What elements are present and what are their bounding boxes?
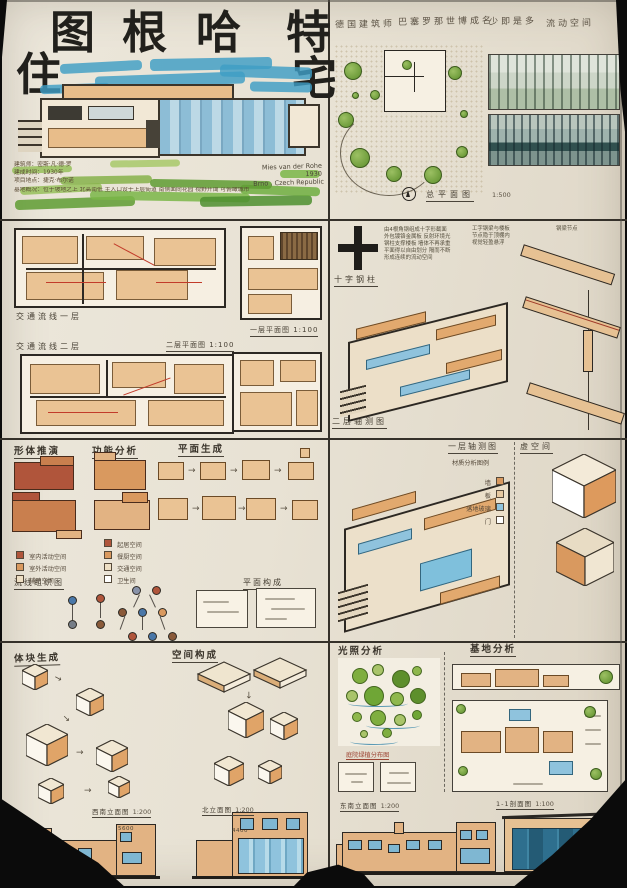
open-tray-diagram <box>252 654 308 690</box>
compose-sketch-line <box>203 601 229 603</box>
legend-a-label-3: 辅助空间 <box>29 578 54 585</box>
massing-study-block <box>94 500 150 530</box>
plan1-room <box>22 236 78 264</box>
structure-note-b2: 节点隐于顶棚内 <box>472 233 510 240</box>
structure-note-a3: 钢柱支撑楼板 墙体不再承重 <box>384 241 450 248</box>
massing-study-block <box>122 492 148 503</box>
plan2-room <box>112 362 166 388</box>
siteplan-cell-tan <box>461 731 501 753</box>
lily-pad <box>352 712 362 722</box>
plangen-arrow: → <box>192 504 200 514</box>
space-compose-cube <box>228 702 264 738</box>
siteplan-cell-tan <box>543 731 573 753</box>
house-stair <box>18 120 42 152</box>
north-arrow-triangle <box>406 190 410 197</box>
plan1-wall <box>26 268 216 270</box>
grass-marker-stroke <box>200 195 312 207</box>
siteplan-tiny-note <box>513 783 543 785</box>
interior-sketch-1 <box>488 54 620 110</box>
massing-arrow: → <box>76 748 84 758</box>
massing-study-block <box>40 456 74 466</box>
site-tree <box>402 60 412 70</box>
section-scale: 1:100 <box>535 800 554 808</box>
plangen-small-square <box>300 448 310 458</box>
pond-label: 庭院绿植分布图 <box>346 750 389 760</box>
elev-c-window <box>476 830 488 840</box>
plan-small-room <box>248 294 292 314</box>
fixture-icon-box <box>338 762 374 792</box>
board-right-border <box>620 0 622 886</box>
site-section-strip <box>452 664 620 690</box>
elev-c-window <box>368 840 382 850</box>
intro-note-2: 建成时间：1930年 <box>14 170 64 177</box>
legend-a-row: 室内活动空间 <box>16 544 66 556</box>
house-window-band-mid <box>88 106 134 120</box>
elev-b-glass-band <box>238 838 304 874</box>
plan1-circulation-line <box>46 282 106 283</box>
house-lower-band <box>48 128 148 148</box>
title-char-2: 根 <box>122 10 167 55</box>
lily-pad <box>412 666 422 676</box>
plangen-shape <box>242 460 270 480</box>
house-glass-block <box>158 98 306 156</box>
grid-vertical-divider <box>328 0 330 884</box>
flow-node <box>148 632 157 641</box>
cross-column-icon <box>338 226 378 270</box>
circulation-plan-level2 <box>20 354 234 434</box>
elev-a-window <box>122 852 142 864</box>
house-right-wing <box>288 104 320 148</box>
plangen-shape <box>246 498 276 520</box>
floor-plan-level1-small <box>240 226 322 320</box>
elev-b-scale: 1:200 <box>235 806 254 814</box>
grid-horizontal-1 <box>0 219 627 221</box>
plan1-room <box>116 270 188 300</box>
plangen-shape <box>158 498 188 520</box>
legend-a-row: 室外活动空间 <box>16 556 66 568</box>
presentation-board: 图 根 哈 特 住 宅 建筑师：密斯·凡·德·罗 建成时间：1930年 项目地点… <box>0 0 627 888</box>
massing-study-block <box>56 530 82 539</box>
title-char-3: 哈 <box>196 10 241 55</box>
north-arrow-icon <box>402 187 416 201</box>
interior-sketch-2 <box>488 114 620 166</box>
plant-icon <box>387 782 411 784</box>
site-tree <box>338 112 354 128</box>
legend-b-row: 交通空间 <box>104 556 142 568</box>
site-tree <box>344 62 362 80</box>
strip-tree <box>599 670 613 684</box>
board-top-border <box>0 0 627 2</box>
site-analysis-header: 基地分析 <box>470 641 516 657</box>
compose-sketch-line <box>265 618 287 620</box>
water-ripple <box>350 738 398 745</box>
elev-b-window <box>262 818 278 830</box>
section-label: 1-1剖面图 1:100 <box>496 798 554 810</box>
compose-sketch-line <box>271 608 305 610</box>
siteplan-tiny-note <box>585 729 601 731</box>
floor-plan2-label: 二层平面图 1:100 <box>166 340 234 352</box>
flow-node <box>68 596 77 605</box>
plan2-wall <box>30 396 226 398</box>
plangen-shape <box>158 462 184 480</box>
structure-note-a5: 形成连续的流动空间 <box>384 255 433 262</box>
massing-cube <box>96 740 128 772</box>
elevation-a-label: 西南立面图 1:200 <box>92 806 151 818</box>
floor-plan1-label: 一层平面图 1:100 <box>250 325 318 337</box>
lily-pad <box>412 710 422 720</box>
plant-icon-box <box>380 762 416 792</box>
lily-pad <box>382 728 392 738</box>
siteplan-tree-dot <box>590 768 602 780</box>
plant-icon <box>389 772 409 774</box>
strip-building <box>495 669 539 687</box>
elevation-b-label: 北立面图 1:200 <box>202 804 254 816</box>
circulation-level1-label: 交通流线一层 <box>16 311 82 322</box>
circulation-plan-level1 <box>14 228 226 308</box>
flow-node <box>132 586 141 595</box>
massing-cube <box>22 664 48 690</box>
plan1-room <box>154 238 216 266</box>
panel8-divider <box>444 652 445 792</box>
legend-b-row: 餐厨空间 <box>104 544 142 556</box>
elev-a-scale: 1:200 <box>133 808 152 816</box>
grass-marker-stroke <box>110 159 180 167</box>
structure-note-a1: 由4根角钢组成十字形截面 <box>384 227 447 234</box>
elev-c-label-text: 东南立面图 <box>340 802 378 810</box>
plan2-room <box>148 400 224 426</box>
structure-note-a4: 平面得以自由划分 隔而不断 <box>384 248 450 255</box>
flow-node <box>158 608 167 617</box>
elev-c-window <box>406 840 420 850</box>
elev-b-label-text: 北立面图 <box>202 806 232 814</box>
plangen-arrow: → <box>238 504 246 514</box>
legend-b-row: 起居空间 <box>104 532 142 544</box>
siteplan-label-text: 总平面图 <box>426 190 474 199</box>
elev-b-window <box>286 818 300 830</box>
plan-small-room <box>248 236 274 260</box>
elev-c-window <box>348 840 362 850</box>
flow-link <box>142 616 143 630</box>
elev-c-scale: 1:200 <box>381 802 400 810</box>
open-tray-diagram <box>196 658 252 694</box>
void-space-open-box <box>556 528 614 586</box>
floor-plan-level2-small <box>232 352 322 432</box>
plangen-shape <box>292 500 318 520</box>
site-tree <box>448 66 462 80</box>
lily-pad <box>390 692 404 706</box>
intro-note-3: 项目地点：捷克·布尔诺 <box>14 178 74 185</box>
material-label-4: 门 <box>485 519 491 526</box>
panel6-divider <box>514 442 515 638</box>
elev-b-mass <box>196 840 236 878</box>
plangen-shape <box>288 462 314 480</box>
elev-c-window <box>388 844 400 853</box>
massing-study-block <box>14 462 74 490</box>
siteplan-footprint-inner-wall-2 <box>414 62 415 92</box>
keyword-flowing-space: 流动空间 <box>546 16 594 30</box>
material-swatch-4 <box>496 516 504 524</box>
lily-pad <box>352 668 368 684</box>
plan-small-room <box>296 390 318 426</box>
flow-node <box>96 620 105 629</box>
elev-c-window <box>428 840 442 850</box>
elevation-c-label: 东南立面图 1:200 <box>340 800 399 812</box>
massing-cube <box>76 688 104 716</box>
material-row: 墙 <box>446 470 504 483</box>
plangen-shape <box>200 462 226 480</box>
plangen-arrow: → <box>230 466 238 476</box>
siteplan-cell-glass <box>509 709 531 721</box>
fixture-icon <box>345 773 367 775</box>
lily-pad <box>410 688 426 704</box>
plan-small-hatch-block <box>280 232 318 260</box>
siteplan-cell-glass <box>549 761 573 775</box>
flow-node <box>168 632 177 641</box>
fixture-icon <box>351 781 363 783</box>
site-tree <box>456 146 468 158</box>
massing-study-block <box>94 452 116 461</box>
void-space-cube <box>552 454 616 518</box>
siteplan-tree-dot <box>458 766 468 776</box>
axon-level1-label: 一层轴测图 <box>448 441 498 454</box>
site-tree <box>370 90 380 100</box>
massing-cube <box>38 778 64 804</box>
cross-horizontal-bar <box>338 244 378 252</box>
elev-a-label-text: 西南立面图 <box>92 808 130 816</box>
massing-cube <box>108 776 130 798</box>
compose-sketch-line <box>265 598 295 600</box>
lily-pad <box>346 690 358 702</box>
analysis-header-plangen: 平面生成 <box>178 441 224 457</box>
plan-compose-box-1 <box>196 590 248 628</box>
void-space-label: 虚空间 <box>520 441 553 454</box>
strip-building <box>461 673 491 687</box>
house-window-band-left <box>48 106 82 120</box>
keyword-architect: 德国建筑师 <box>335 16 395 30</box>
massing-arrow: → <box>84 786 92 796</box>
structure-note-a2: 外包镀铬金属板 反射环境光 <box>384 234 450 241</box>
lily-pad <box>370 710 386 726</box>
space-compose-cube <box>214 756 244 786</box>
massing-study-block <box>94 460 146 490</box>
intro-note-1: 建筑师：密斯·凡·德·罗 <box>14 162 72 169</box>
lily-pad <box>392 670 410 688</box>
siteplan-tree-dot <box>456 704 466 714</box>
plan2-room <box>30 364 100 394</box>
plan2-room <box>174 364 224 394</box>
elev-b-groundline <box>192 876 312 879</box>
plan1-circulation-line <box>156 282 202 283</box>
title-char-4: 特 <box>286 10 331 55</box>
massing-study-block <box>12 500 76 532</box>
elev-c-window <box>460 848 490 864</box>
material-row: 板 <box>446 483 504 496</box>
flow-link <box>72 604 73 620</box>
plan-small-room <box>240 392 292 426</box>
legend-a-swatch-3 <box>16 575 24 583</box>
plan-small-room <box>240 360 274 386</box>
interior-sketch-1-stripes <box>489 55 619 109</box>
structure-note-b1: 工字钢梁与楼板 <box>472 226 510 233</box>
plan1-room <box>26 272 104 300</box>
house-entry-door <box>146 120 160 148</box>
plan2-wall <box>106 360 108 396</box>
space-compose-cube <box>258 760 282 784</box>
lily-pad <box>364 686 384 706</box>
keyword-fame: 巴塞罗那世博成名 <box>398 13 494 28</box>
plangen-arrow: → <box>188 466 196 476</box>
plan-small-room <box>248 268 318 290</box>
siteplan-cell-tan <box>505 727 539 753</box>
siteplan-label: 总平面图 <box>426 189 474 202</box>
circulation-level2-label: 交通流线二层 <box>16 341 82 352</box>
flow-link <box>100 602 101 618</box>
material-row: 落地玻璃 <box>446 496 504 509</box>
elev-a-window <box>120 832 132 842</box>
grid-horizontal-2 <box>0 438 627 440</box>
site-tree <box>352 92 359 99</box>
interior-sketch-2-stripes <box>489 115 619 165</box>
plan-compose-box-2 <box>256 588 316 628</box>
strip-building <box>543 675 569 687</box>
flow-node <box>96 594 105 603</box>
sky-marker-stroke <box>250 81 312 92</box>
intro-note-4: 基地概况：位于坡地之上 北高南低 主入口设于上层街道 南侧面向花园 视野开阔 可… <box>14 187 249 194</box>
elev-c-mass <box>342 832 462 872</box>
massing-cube <box>26 724 68 766</box>
elev-c-chimney <box>394 822 404 834</box>
elev-c-window <box>460 830 472 840</box>
section-label-text: 1-1剖面图 <box>496 800 532 808</box>
cross-column-label: 十字钢柱 <box>334 274 378 287</box>
legend-b-label-4: 卫生间 <box>117 578 136 585</box>
siteplan-footprint-inner-wall <box>384 76 424 77</box>
flow-node <box>128 632 137 641</box>
legend-b: 起居空间 餐厨空间 交通空间 卫生间 <box>104 532 142 580</box>
compose-sketch-line <box>207 611 239 613</box>
lily-pad <box>394 714 406 726</box>
hanging-column-detail <box>583 330 593 372</box>
material-legend-title: 材质分析图例 <box>452 458 489 467</box>
flow-node <box>68 620 77 629</box>
grid-horizontal-3 <box>0 641 627 643</box>
legend-b-swatch-4 <box>104 575 112 583</box>
site-tree <box>386 166 402 182</box>
plangen-arrow: → <box>280 504 288 514</box>
material-legend: 墙 板 落地玻璃 门 <box>446 470 504 522</box>
elev-b-window <box>240 818 254 830</box>
plangen-arrow: → <box>274 466 282 476</box>
beam-note-label: 钢梁节点 <box>556 226 578 233</box>
legend-a: 室内活动空间 室外活动空间 辅助空间 <box>16 544 66 580</box>
lily-pad <box>372 664 384 676</box>
structure-note-b3: 视觉轻盈悬浮 <box>472 240 504 247</box>
keyword-less-is-more: 少即是多 <box>489 14 537 28</box>
flow-node <box>138 608 147 617</box>
space-compose-cube <box>270 712 298 740</box>
light-analysis-header: 光照分析 <box>338 643 384 659</box>
lily-pad <box>360 730 368 738</box>
siteplan-tiny-note <box>585 743 601 745</box>
siteplan-tree-dot <box>584 706 596 718</box>
siteplan-scale: 1:500 <box>492 191 511 199</box>
site-tree <box>460 110 468 118</box>
site-tree <box>424 166 442 184</box>
massing-study-block <box>12 492 40 501</box>
flow-node <box>118 608 127 617</box>
plan-small-room <box>280 360 316 382</box>
flow-node <box>152 586 161 595</box>
site-tree <box>350 148 370 168</box>
plangen-shape <box>202 496 236 520</box>
plan2-circulation-line <box>48 412 118 413</box>
